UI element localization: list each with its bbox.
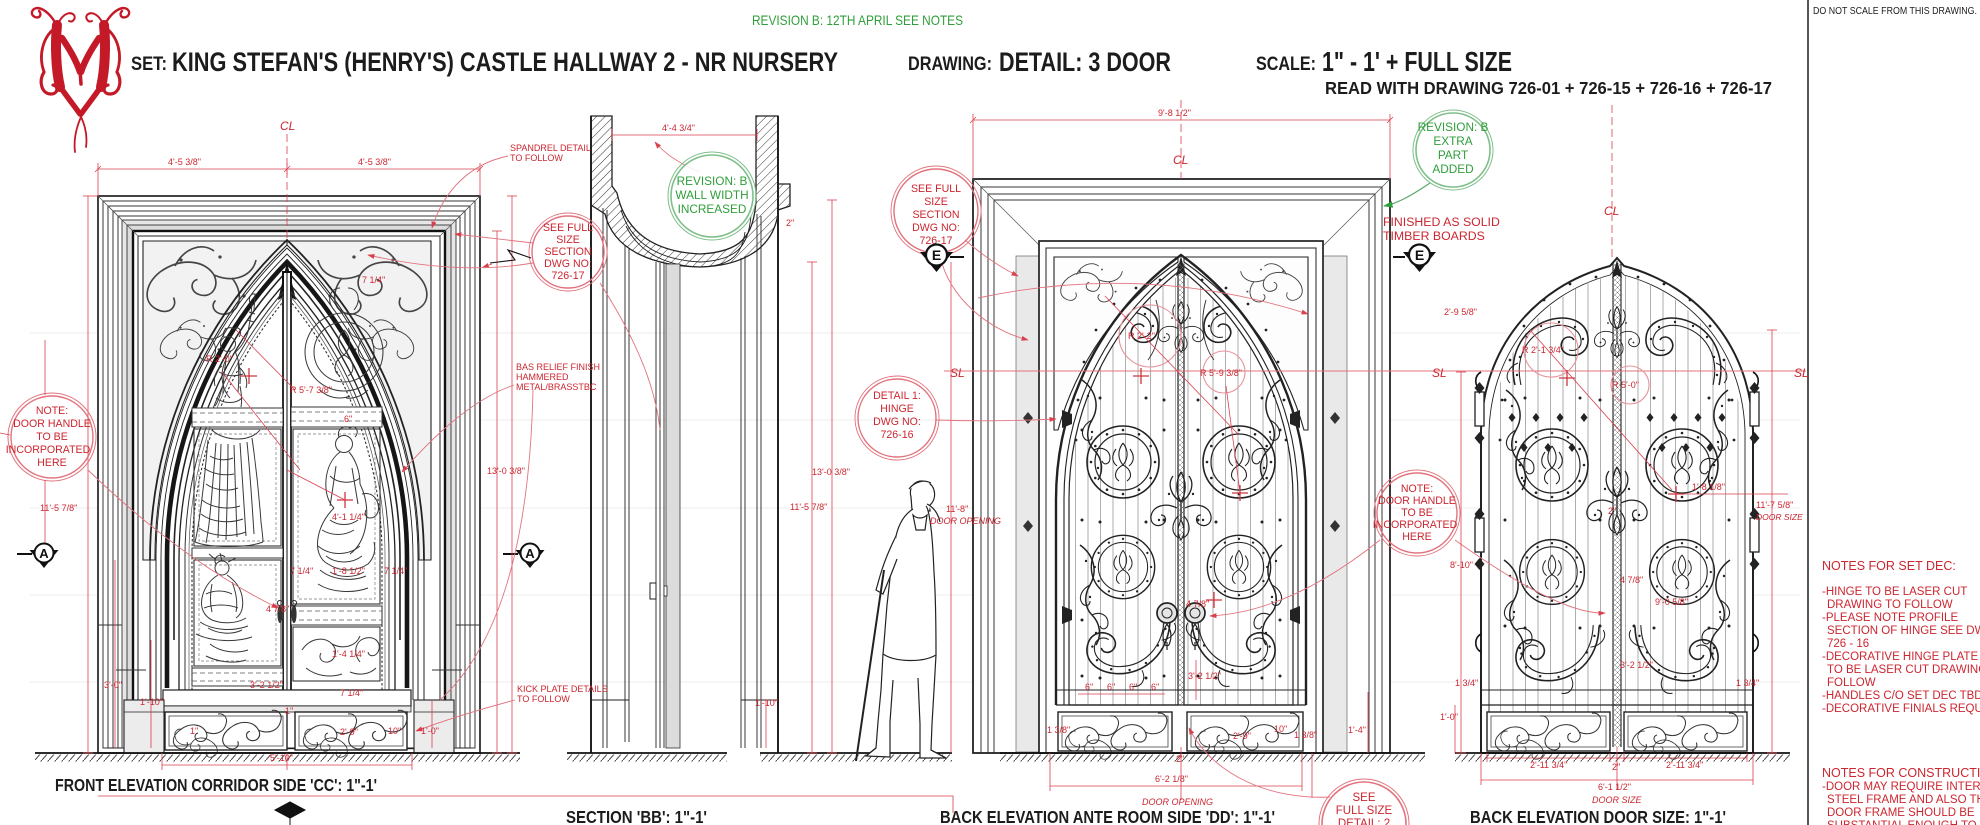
svg-text:SECTION: SECTION [544, 246, 591, 258]
svg-text:-DECORATIVE HINGE PLATE: -DECORATIVE HINGE PLATE [1822, 651, 1978, 663]
svg-text:SECTION: SECTION [912, 209, 959, 221]
svg-text:BAS RELIEF FINISH: BAS RELIEF FINISH [516, 362, 600, 372]
svg-text:DOOR SIZE: DOOR SIZE [1756, 512, 1803, 522]
svg-text:E: E [1415, 247, 1424, 263]
svg-text:1'-10": 1'-10" [140, 697, 163, 707]
svg-text:4 7/8": 4 7/8" [1186, 599, 1209, 609]
svg-text:DRAWING TO FOLLOW: DRAWING TO FOLLOW [1827, 599, 1953, 611]
svg-text:REVISION B: 12TH APRIL SEE NOT: REVISION B: 12TH APRIL SEE NOTES [752, 12, 963, 28]
svg-text:TO FOLLOW: TO FOLLOW [517, 694, 570, 704]
svg-text:1'-4": 1'-4" [1348, 725, 1366, 735]
svg-text:REVISION: B: REVISION: B [677, 174, 748, 188]
svg-text:7 1/4": 7 1/4" [362, 275, 385, 285]
svg-text:TIMBER BOARDS: TIMBER BOARDS [1383, 229, 1485, 243]
svg-text:9'-0 5/8": 9'-0 5/8" [1655, 597, 1688, 607]
svg-text:7 1/4": 7 1/4" [384, 566, 407, 576]
svg-text:7 1/4": 7 1/4" [340, 688, 363, 698]
svg-text:4 7/8": 4 7/8" [266, 604, 289, 614]
svg-text:DWG NO:: DWG NO: [873, 416, 921, 428]
svg-text:1": 1" [190, 726, 198, 736]
svg-text:1'-8 1/8": 1'-8 1/8" [1692, 482, 1725, 492]
svg-text:R 5'-7 3/8": R 5'-7 3/8" [290, 385, 332, 395]
svg-text:DOOR HANDLE: DOOR HANDLE [1378, 495, 1456, 507]
svg-text:6'-1 1/2": 6'-1 1/2" [1598, 782, 1631, 792]
svg-text:TO BE LASER CUT DRAWING TO: TO BE LASER CUT DRAWING TO [1827, 664, 1980, 676]
svg-text:DRAWING:: DRAWING: [908, 53, 992, 75]
svg-text:2": 2" [786, 218, 794, 228]
svg-text:SPANDREL DETAIL: SPANDREL DETAIL [510, 143, 591, 153]
svg-text:REVISION: B: REVISION: B [1418, 120, 1489, 134]
svg-text:3'-2 1/2": 3'-2 1/2" [250, 680, 283, 690]
svg-text:DOOR OPENING: DOOR OPENING [1142, 797, 1213, 807]
svg-text:SET:: SET: [131, 53, 167, 75]
svg-text:INCORPORATED: INCORPORATED [6, 444, 91, 456]
svg-text:10": 10" [1274, 724, 1287, 734]
svg-text:DWG NO:: DWG NO: [544, 258, 592, 270]
svg-text:STEEL FRAME AND ALSO THE: STEEL FRAME AND ALSO THE [1827, 794, 1980, 806]
svg-text:HINGE: HINGE [880, 403, 914, 415]
svg-text:SIZE: SIZE [556, 234, 580, 246]
svg-text:2": 2" [1176, 754, 1184, 764]
svg-text:1'-0": 1'-0" [421, 726, 439, 736]
svg-text:1 3/4": 1 3/4" [1736, 678, 1759, 688]
svg-text:726 - 16: 726 - 16 [1827, 638, 1869, 650]
svg-text:E: E [932, 247, 941, 263]
svg-text:SECTION OF HINGE SEE DWG N: SECTION OF HINGE SEE DWG N [1827, 625, 1980, 637]
svg-text:HAMMERED: HAMMERED [516, 372, 569, 382]
svg-text:R 5'-0": R 5'-0" [1612, 380, 1639, 390]
svg-text:FOLLOW: FOLLOW [1827, 677, 1876, 689]
svg-text:DETAIL: 2: DETAIL: 2 [1338, 818, 1390, 825]
svg-text:CL: CL [280, 119, 295, 133]
svg-text:2": 2" [1608, 506, 1616, 516]
svg-text:7 1/4": 7 1/4" [290, 566, 313, 576]
svg-text:R 2'-2": R 2'-2" [1128, 331, 1155, 341]
svg-text:R 5'-9 3/8": R 5'-9 3/8" [1200, 368, 1242, 378]
svg-text:11'-5 7/8": 11'-5 7/8" [40, 503, 77, 513]
svg-text:11'-8": 11'-8" [946, 504, 968, 514]
svg-text:DWG NO:: DWG NO: [912, 222, 960, 234]
svg-text:NOTES FOR CONSTRUCTION:: NOTES FOR CONSTRUCTION: [1822, 766, 1980, 780]
svg-text:EXTRA: EXTRA [1433, 134, 1472, 148]
svg-text:6": 6" [344, 414, 352, 424]
svg-text:INCORPORATED: INCORPORATED [1373, 519, 1458, 531]
svg-text:DO NOT SCALE FROM THIS DRAWING: DO NOT SCALE FROM THIS DRAWING. [1813, 5, 1977, 17]
svg-text:3'-2 1/2": 3'-2 1/2" [1188, 671, 1221, 681]
svg-text:SEE FULL: SEE FULL [911, 183, 961, 195]
svg-text:ADDED: ADDED [1432, 162, 1473, 176]
svg-text:TO BE: TO BE [1401, 507, 1433, 519]
svg-text:11'-5 7/8": 11'-5 7/8" [790, 502, 827, 512]
svg-text:6": 6" [1151, 682, 1159, 692]
svg-text:DOOR OPENING: DOOR OPENING [930, 516, 1001, 526]
svg-text:SEE: SEE [1352, 792, 1375, 804]
svg-text:4'-5 3/8": 4'-5 3/8" [168, 157, 201, 167]
svg-text:4'-4 3/4": 4'-4 3/4" [662, 123, 695, 133]
svg-text:-DOOR MAY REQUIRE INTERNAL: -DOOR MAY REQUIRE INTERNAL [1822, 781, 1980, 793]
svg-text:5'-10": 5'-10" [270, 753, 293, 763]
svg-text:2'-9 5/8": 2'-9 5/8" [1444, 307, 1477, 317]
svg-text:TO FOLLOW: TO FOLLOW [510, 153, 563, 163]
svg-text:BACK ELEVATION ANTE ROOM SIDE: BACK ELEVATION ANTE ROOM SIDE 'DD': 1"-1… [940, 807, 1275, 825]
svg-text:DOOR HANDLE: DOOR HANDLE [13, 418, 91, 430]
svg-text:HERE: HERE [37, 457, 66, 469]
svg-text:10": 10" [388, 726, 401, 736]
svg-text:1 3/8": 1 3/8" [1047, 725, 1070, 735]
svg-text:4'-1 1/4": 4'-1 1/4" [332, 512, 365, 522]
svg-text:SL: SL [950, 366, 965, 380]
svg-text:726-17: 726-17 [552, 270, 585, 282]
svg-text:METAL/BRASSTBC: METAL/BRASSTBC [516, 382, 597, 392]
svg-text:NOTE:: NOTE: [1401, 483, 1433, 495]
svg-text:FINISHED AS SOLID: FINISHED AS SOLID [1383, 215, 1500, 229]
svg-text:NOTE:: NOTE: [36, 405, 68, 417]
svg-text:PART: PART [1438, 148, 1468, 162]
svg-text:SCALE:: SCALE: [1256, 53, 1316, 75]
svg-text:3'-0": 3'-0" [104, 680, 122, 690]
svg-text:SL: SL [1432, 366, 1447, 380]
svg-text:FULL SIZE: FULL SIZE [1336, 805, 1393, 817]
svg-text:2'-9": 2'-9" [340, 727, 358, 737]
svg-text:4 7/8": 4 7/8" [1620, 575, 1643, 585]
svg-text:11'-7 5/8": 11'-7 5/8" [1756, 500, 1793, 510]
svg-text:HERE: HERE [1402, 531, 1431, 543]
svg-text:R 2'-1 3/4": R 2'-1 3/4" [1522, 345, 1564, 355]
svg-text:BACK ELEVATION DOOR SIZE: 1"-1: BACK ELEVATION DOOR SIZE: 1"-1' [1470, 807, 1726, 825]
svg-text:SIZE: SIZE [924, 196, 948, 208]
svg-text:FRONT ELEVATION CORRIDOR SIDE: FRONT ELEVATION CORRIDOR SIDE 'CC': 1"-1… [55, 775, 377, 795]
svg-text:-PLEASE NOTE PROFILE: -PLEASE NOTE PROFILE [1822, 612, 1958, 624]
svg-text:SECTION 'BB': 1"-1': SECTION 'BB': 1"-1' [566, 807, 707, 825]
svg-text:TO BE: TO BE [36, 431, 68, 443]
svg-text:SEE FULL: SEE FULL [543, 222, 593, 234]
svg-text:DETAIL 1:: DETAIL 1: [873, 390, 921, 402]
svg-text:6": 6" [1107, 682, 1115, 692]
svg-text:WALL WIDTH: WALL WIDTH [675, 188, 748, 202]
svg-text:726-16: 726-16 [881, 429, 914, 441]
svg-text:1 3/8": 1 3/8" [1294, 730, 1317, 740]
svg-text:2'-9": 2'-9" [1233, 731, 1251, 741]
svg-text:6": 6" [1129, 682, 1137, 692]
svg-text:INCREASED: INCREASED [678, 202, 747, 216]
svg-text:R 2'-0": R 2'-0" [206, 354, 233, 364]
svg-text:DOOR FRAME SHOULD BE: DOOR FRAME SHOULD BE [1827, 807, 1975, 819]
svg-text:A: A [525, 546, 535, 561]
svg-text:-DECORATIVE FINIALS REQURIE: -DECORATIVE FINIALS REQURIE [1822, 703, 1980, 715]
svg-text:4'-5 3/8": 4'-5 3/8" [358, 157, 391, 167]
svg-text:3'-2 1/2": 3'-2 1/2" [1620, 660, 1653, 670]
svg-text:KICK PLATE DETAILS: KICK PLATE DETAILS [517, 684, 608, 694]
svg-text:9'-8 1/2": 9'-8 1/2" [1158, 108, 1191, 118]
svg-text:-HINGE TO BE LASER CUT: -HINGE TO BE LASER CUT [1822, 586, 1967, 598]
svg-text:SL: SL [1794, 366, 1809, 380]
svg-text:NOTES FOR SET DEC:: NOTES FOR SET DEC: [1822, 559, 1956, 573]
svg-text:1'-4 1/4": 1'-4 1/4" [332, 649, 365, 659]
svg-text:2": 2" [1612, 762, 1620, 772]
svg-text:1'-8 1/2": 1'-8 1/2" [332, 566, 365, 576]
svg-text:DETAIL: 3 DOOR: DETAIL: 3 DOOR [999, 47, 1171, 77]
svg-text:2'-11 3/4": 2'-11 3/4" [1666, 760, 1703, 770]
svg-text:SUBSTANTIAL ENOUGH TO: SUBSTANTIAL ENOUGH TO [1827, 820, 1977, 825]
svg-text:A: A [39, 546, 49, 561]
svg-text:1 3/4": 1 3/4" [1455, 678, 1478, 688]
svg-text:KING STEFAN'S (HENRY'S) CASTLE: KING STEFAN'S (HENRY'S) CASTLE HALLWAY 2… [172, 47, 838, 77]
svg-text:READ WITH DRAWING 726-01 + 726: READ WITH DRAWING 726-01 + 726-15 + 726-… [1325, 78, 1772, 98]
svg-text:DOOR SIZE: DOOR SIZE [1592, 795, 1643, 805]
svg-text:13'-0 3/8": 13'-0 3/8" [487, 466, 525, 476]
svg-text:2'-11 3/4": 2'-11 3/4" [1530, 760, 1567, 770]
svg-text:-HANDLES C/O SET DEC TBD: -HANDLES C/O SET DEC TBD [1822, 690, 1980, 702]
svg-text:6": 6" [1085, 682, 1093, 692]
svg-text:6'-2 1/8": 6'-2 1/8" [1155, 774, 1188, 784]
svg-text:1" - 1' + FULL SIZE: 1" - 1' + FULL SIZE [1322, 46, 1512, 77]
svg-text:8'-10": 8'-10" [1450, 560, 1473, 570]
svg-text:13'-0 3/8": 13'-0 3/8" [812, 467, 850, 477]
svg-text:1": 1" [285, 706, 293, 716]
svg-text:1'-10": 1'-10" [755, 698, 778, 708]
